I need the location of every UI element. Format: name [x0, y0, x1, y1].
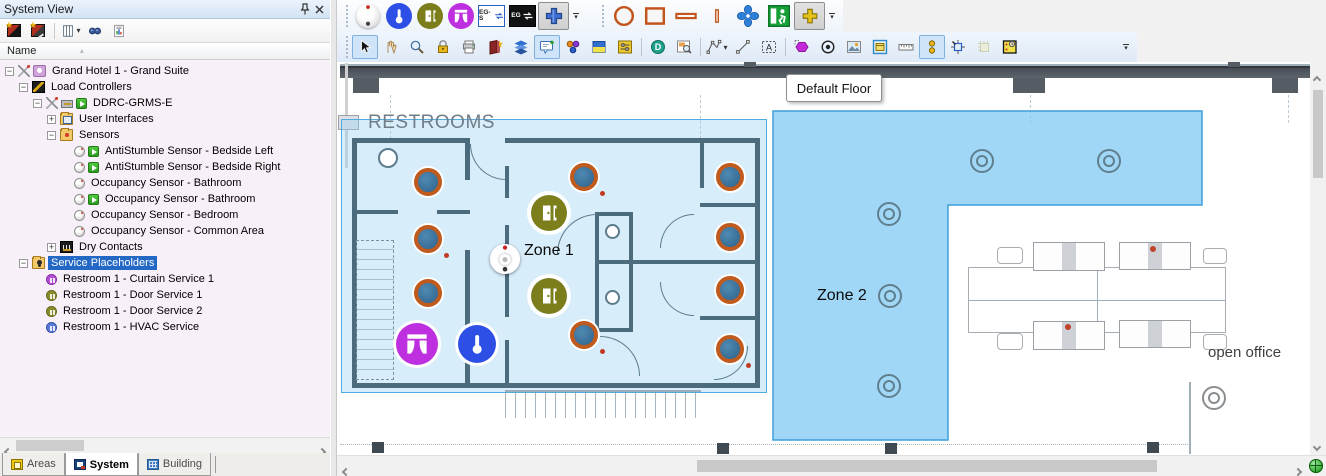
sort-ascending-icon: ▲ — [78, 48, 85, 55]
wall — [595, 328, 633, 332]
tree-item[interactable]: Occupancy Sensor - Bathroom — [0, 175, 330, 191]
column — [885, 443, 897, 454]
tree-item-label[interactable]: Restroom 1 - HVAC Service — [60, 320, 202, 334]
status-dot — [600, 349, 605, 354]
ceiling-light — [877, 202, 901, 226]
tab-label: System — [90, 459, 129, 471]
dropdown-arrow-icon[interactable]: ▾ — [723, 43, 727, 52]
tree-item[interactable]: Restroom 1 - Door Service 1 — [0, 287, 330, 303]
report-button[interactable] — [108, 21, 130, 41]
tree-item-label[interactable]: User Interfaces — [76, 112, 157, 126]
collapse-toggle-icon[interactable]: − — [33, 99, 42, 108]
ti-svc-hvac-icon — [46, 322, 57, 333]
collapse-toggle-icon[interactable]: − — [19, 83, 28, 92]
tree-item[interactable]: −Service Placeholders — [0, 255, 330, 271]
tree-item[interactable]: −DDRC-GRMS-E — [0, 95, 330, 111]
ti-sensor-icon — [74, 194, 85, 205]
status-dot — [746, 363, 751, 368]
occupancy-sensor-tool[interactable] — [352, 2, 383, 30]
ti-svc-door-icon — [46, 306, 57, 317]
plan-horizontal-scrollbar[interactable] — [337, 455, 1326, 476]
wall — [700, 203, 760, 207]
desk — [1033, 242, 1105, 271]
scrollbar-thumb[interactable] — [1313, 90, 1323, 178]
hbar-shape-tool[interactable] — [670, 2, 701, 30]
tree-item[interactable]: Occupancy Sensor - Bedroom — [0, 207, 330, 223]
thermostat-tool[interactable] — [383, 2, 414, 30]
status-dot — [444, 253, 449, 258]
paste-grid-tool — [971, 35, 997, 59]
play-icon — [88, 146, 99, 157]
tree-item-label[interactable]: Service Placeholders — [48, 256, 157, 270]
tree-item[interactable]: Restroom 1 - Curtain Service 1 — [0, 271, 330, 287]
column — [372, 442, 384, 453]
tree-item-label[interactable]: Occupancy Sensor - Bathroom — [102, 192, 258, 206]
ti-load-icon — [32, 81, 45, 93]
occupancy-sensor-device[interactable] — [570, 321, 598, 349]
expand-toggle-icon[interactable]: + — [47, 115, 56, 124]
play-icon — [88, 162, 99, 173]
ti-chip-icon — [61, 100, 73, 108]
wall — [352, 383, 760, 388]
connection-icon — [18, 65, 30, 77]
column-stub — [353, 78, 379, 93]
align-tool[interactable] — [919, 35, 945, 59]
connection-icon — [46, 97, 58, 109]
scrollbar-thumb[interactable] — [16, 440, 84, 451]
tab-building[interactable]: Building — [138, 453, 211, 476]
eg-swap-tool[interactable]: EG — [507, 2, 538, 30]
lock-tool[interactable] — [430, 35, 456, 59]
toilet — [378, 148, 398, 168]
occupancy-sensor-device[interactable] — [414, 168, 442, 196]
panel-title-bar: System View — [0, 0, 330, 19]
column — [717, 443, 729, 454]
system-tree: −Grand Hotel 1 - Grand Suite−Load Contro… — [0, 60, 330, 437]
toilet — [605, 224, 620, 239]
ceiling-light — [1097, 149, 1121, 173]
column-stub — [1013, 78, 1045, 93]
zone2-label: Zone 2 — [817, 287, 867, 305]
print-tool[interactable] — [456, 35, 482, 59]
select-tool[interactable] — [352, 35, 378, 59]
tree-item-label[interactable]: Occupancy Sensor - Common Area — [88, 224, 267, 238]
ti-dry-icon — [60, 241, 73, 253]
scroll-right-icon[interactable] — [1295, 462, 1301, 476]
wall — [629, 212, 633, 332]
ti-svc-curtain-icon — [46, 274, 57, 285]
chair — [997, 247, 1023, 264]
panel-title: System View — [4, 2, 298, 16]
ti-sensor-icon — [74, 210, 85, 221]
tab-divider — [215, 456, 216, 473]
ceiling-light — [878, 284, 902, 308]
add-service-tool[interactable] — [538, 2, 569, 30]
wall — [700, 316, 760, 320]
zone1-label: Zone 1 — [524, 242, 574, 260]
chair — [997, 333, 1023, 350]
note-tool[interactable] — [534, 35, 560, 59]
dropdown-arrow-icon[interactable]: ▾ — [76, 26, 80, 35]
tree-item-label[interactable]: AntiStumble Sensor - Bedside Left — [102, 144, 276, 158]
tree-item-label[interactable]: Occupancy Sensor - Bathroom — [88, 176, 244, 190]
system-view-toolbar: ★★▾ — [0, 19, 330, 43]
ceiling-light — [970, 149, 994, 173]
toilet — [605, 290, 620, 305]
add-device-button[interactable]: ★ — [27, 21, 49, 41]
door-service-device[interactable] — [531, 195, 567, 231]
snap-grid-tool[interactable] — [945, 35, 971, 59]
ti-sensor-icon — [74, 162, 85, 173]
collapse-toggle-icon[interactable]: − — [19, 259, 28, 268]
wall — [465, 250, 470, 385]
view-tab-bar: Areas System Building — [0, 453, 330, 476]
tree-item[interactable]: −Load Controllers — [0, 79, 330, 95]
play-icon — [76, 98, 87, 109]
curtain-service-device[interactable] — [396, 323, 438, 365]
grid-baseline — [340, 444, 1190, 445]
application-window: System View ★★▾ Name ▲ −Grand Hotel 1 - … — [0, 0, 1326, 476]
occupancy-sensor-device[interactable] — [716, 335, 744, 363]
occupancy-sensor-device[interactable] — [414, 279, 442, 307]
tree-item-label[interactable]: Restroom 1 - Curtain Service 1 — [60, 272, 217, 286]
motion-sensor-device[interactable] — [490, 244, 520, 274]
toolbar-grip[interactable] — [344, 36, 349, 58]
desk-marker — [1065, 324, 1071, 330]
wall — [700, 138, 704, 188]
occupancy-sensor-device[interactable] — [716, 223, 744, 251]
tab-areas[interactable]: Areas — [2, 453, 65, 476]
column — [1147, 442, 1159, 453]
occupancy-sensor-device[interactable] — [570, 163, 598, 191]
adjust-tool[interactable] — [612, 35, 638, 59]
door-service-device[interactable] — [531, 278, 567, 314]
fill-tool[interactable] — [586, 35, 612, 59]
center-view-tool[interactable] — [815, 35, 841, 59]
column-stub — [1272, 78, 1298, 93]
wall — [595, 212, 633, 216]
tree-item[interactable]: AntiStumble Sensor - Bedside Left — [0, 143, 330, 159]
demo-mode-tool[interactable]: D — [645, 35, 671, 59]
collapse-toggle-icon[interactable]: − — [5, 67, 14, 76]
tree-item-label[interactable]: AntiStumble Sensor - Bedside Right — [102, 160, 283, 174]
tree-item[interactable]: +User Interfaces — [0, 111, 330, 127]
floor-name-label[interactable]: Default Floor — [786, 74, 882, 102]
ellipse-shape-tool[interactable] — [608, 2, 639, 30]
tree-item[interactable]: −Sensors — [0, 127, 330, 143]
svg-text:A: A — [766, 43, 772, 53]
toolbar-separator — [785, 38, 786, 56]
svg-text:D: D — [655, 42, 662, 52]
zoom-tool[interactable] — [404, 35, 430, 59]
ti-folder-sensors-icon — [60, 129, 73, 141]
tree-item-label[interactable]: Load Controllers — [48, 80, 135, 94]
pin-icon[interactable] — [298, 2, 312, 16]
add-area-button[interactable]: ★ — [3, 21, 25, 41]
chair — [1203, 248, 1227, 264]
toolbar-overflow-button[interactable]: ▾ — [829, 13, 835, 20]
door-service-tool[interactable] — [414, 2, 445, 30]
panel-splitter[interactable] — [331, 0, 337, 476]
ti-svc-door-icon — [46, 290, 57, 301]
wall — [437, 210, 470, 214]
find-button[interactable] — [84, 21, 106, 41]
draw-line-tool[interactable] — [730, 35, 756, 59]
tree-item[interactable]: Restroom 1 - Door Service 2 — [0, 303, 330, 319]
wall — [633, 260, 760, 264]
occupancy-sensor-device[interactable] — [716, 276, 744, 304]
toolbar-grip[interactable] — [600, 5, 605, 27]
open-office-label: open office — [1208, 344, 1281, 361]
pan-tool[interactable] — [378, 35, 404, 59]
tree-item-label[interactable]: Dry Contacts — [76, 240, 146, 254]
tree-item-label[interactable]: Grand Hotel 1 - Grand Suite — [49, 64, 192, 78]
text-region-tool[interactable]: A — [756, 35, 782, 59]
ti-folder-ui-icon — [60, 113, 73, 125]
occupancy-sensor-device[interactable] — [414, 225, 442, 253]
fit-view-icon[interactable] — [1309, 459, 1323, 473]
add-shape-tool[interactable] — [794, 2, 825, 30]
tree-item[interactable]: Occupancy Sensor - Bathroom — [0, 191, 330, 207]
toolbar-overflow-button[interactable]: ▾ — [573, 13, 579, 20]
draw-polygon-tool[interactable]: ▾ — [704, 35, 730, 59]
tree-column-header[interactable]: Name ▲ — [0, 43, 330, 60]
system-view-panel: System View ★★▾ Name ▲ −Grand Hotel 1 - … — [0, 0, 330, 476]
play-icon — [88, 194, 99, 205]
table-divider — [968, 300, 1226, 301]
desk-marker — [1150, 246, 1156, 252]
ceiling-light — [1202, 386, 1226, 410]
wall — [352, 138, 470, 143]
restrooms-label: RESTROOMS — [368, 112, 495, 134]
collapse-toggle-icon[interactable]: − — [47, 131, 56, 140]
choose-columns-button[interactable]: ▾ — [60, 21, 82, 41]
tree-item-label[interactable]: Occupancy Sensor - Bedroom — [88, 208, 241, 222]
eg-s-swap-tool[interactable]: EG-S — [476, 2, 507, 30]
scroll-left-icon[interactable] — [343, 462, 349, 476]
exit-sign-tool[interactable] — [763, 2, 794, 30]
rectangle-shape-tool[interactable] — [639, 2, 670, 30]
layers-tool[interactable] — [508, 35, 534, 59]
tree-item[interactable]: −Grand Hotel 1 - Grand Suite — [0, 63, 330, 79]
fan-tool[interactable] — [732, 2, 763, 30]
toolbar-separator — [700, 38, 701, 56]
region-shape-tool[interactable] — [789, 35, 815, 59]
scroll-down-icon[interactable] — [1314, 437, 1320, 455]
toolbar-overflow-button[interactable]: ▾ — [1123, 44, 1129, 51]
toolbar-separator — [641, 38, 642, 56]
occupancy-sensor-device[interactable] — [716, 163, 744, 191]
ruler-tool[interactable] — [893, 35, 919, 59]
tree-item[interactable]: Occupancy Sensor - Common Area — [0, 223, 330, 239]
vbar-shape-tool[interactable] — [701, 2, 732, 30]
toolbar-separator — [54, 23, 55, 39]
tree-item-label[interactable]: Restroom 1 - Door Service 1 — [60, 288, 205, 302]
scrollbar-thumb[interactable] — [697, 460, 1157, 472]
tree-item-label[interactable]: Restroom 1 - Door Service 2 — [60, 304, 205, 318]
wall — [352, 210, 398, 214]
ti-sensor-icon — [74, 178, 85, 189]
shelving — [356, 240, 394, 380]
background-image-tool[interactable] — [841, 35, 867, 59]
device-toolbar: EG-SEG▾▾ — [337, 0, 1326, 32]
tab-label: Building — [163, 458, 202, 470]
zoom-region-tool[interactable] — [671, 35, 697, 59]
close-icon[interactable] — [312, 2, 326, 16]
hvac-service-device[interactable] — [458, 325, 496, 363]
building-icon — [147, 459, 159, 470]
background-select-tool[interactable] — [867, 35, 893, 59]
tree-item[interactable]: AntiStumble Sensor - Bedside Right — [0, 159, 330, 175]
library-tool[interactable] — [482, 35, 508, 59]
scroll-up-icon[interactable] — [1314, 70, 1320, 88]
wall — [595, 260, 633, 264]
curtain-service-tool[interactable] — [445, 2, 476, 30]
group-colors-tool[interactable] — [560, 35, 586, 59]
plan-vertical-scrollbar[interactable] — [1310, 62, 1326, 455]
status-dot — [600, 191, 605, 196]
toolbar-grip[interactable] — [344, 5, 349, 27]
system-icon — [74, 459, 86, 470]
ceiling-light — [877, 374, 901, 398]
ti-hotel-icon — [33, 65, 46, 77]
schedule-tool[interactable] — [997, 35, 1023, 59]
column-header-label: Name — [7, 45, 36, 57]
tree-item-label[interactable]: DDRC-GRMS-E — [90, 96, 175, 110]
tree-item-label[interactable]: Sensors — [76, 128, 122, 142]
tree-item[interactable]: Restroom 1 - HVAC Service — [0, 319, 330, 335]
tree-horizontal-scrollbar[interactable] — [0, 437, 330, 453]
edit-toolbar: D▾A▾ — [337, 32, 1326, 62]
desk — [1119, 320, 1191, 348]
ti-sensor-icon — [74, 226, 85, 237]
tab-label: Areas — [27, 458, 56, 470]
tree-item[interactable]: +Dry Contacts — [0, 239, 330, 255]
tab-system[interactable]: System — [65, 453, 138, 476]
wall — [505, 138, 760, 143]
expand-toggle-icon[interactable]: + — [47, 243, 56, 252]
ti-sensor-icon — [74, 146, 85, 157]
grid-line — [1288, 95, 1289, 123]
ti-folder-svc-icon — [32, 257, 45, 269]
wall — [505, 340, 509, 385]
stairs — [505, 390, 701, 418]
areas-icon — [11, 459, 23, 470]
